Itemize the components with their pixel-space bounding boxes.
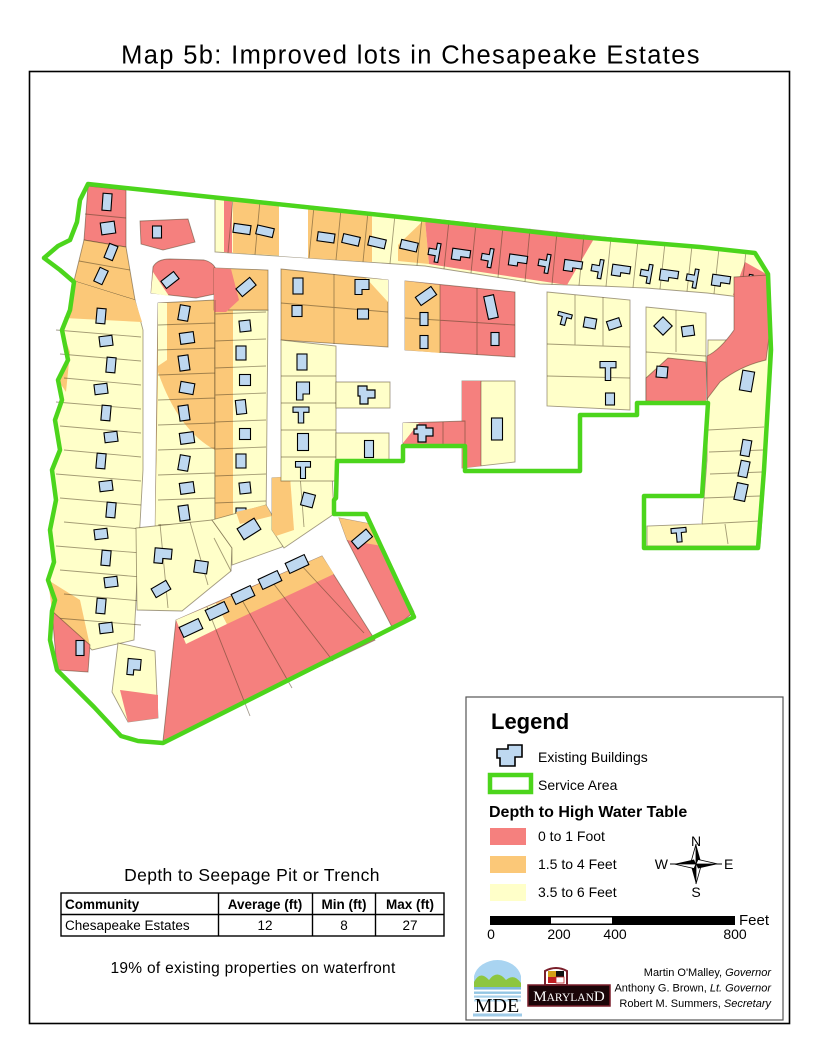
svg-text:Depth to Seepage Pit or Trench: Depth to Seepage Pit or Trench [124,865,380,885]
svg-text:Average (ft): Average (ft) [228,897,303,912]
svg-text:0: 0 [487,926,495,942]
svg-text:19% of existing properties on: 19% of existing properties on waterfront [110,960,396,977]
svg-text:Legend: Legend [491,709,569,734]
svg-text:E: E [724,856,733,872]
svg-text:MARYLAND: MARYLAND [533,989,605,1005]
svg-text:12: 12 [257,918,272,933]
svg-text:W: W [655,856,669,872]
svg-text:1.5 to 4 Feet: 1.5 to 4 Feet [538,856,617,872]
svg-text:0 to 1 Foot: 0 to 1 Foot [538,828,605,844]
svg-text:Chesapeake Estates: Chesapeake Estates [65,918,190,933]
svg-text:800: 800 [723,926,747,942]
svg-text:400: 400 [603,926,627,942]
svg-text:Robert M. Summers, Secretary: Robert M. Summers, Secretary [619,998,772,1010]
svg-text:Existing Buildings: Existing Buildings [538,749,648,765]
svg-text:200: 200 [547,926,571,942]
svg-text:Map 5b: Improved lots in Chesa: Map 5b: Improved lots in Chesapeake Esta… [121,42,701,70]
svg-text:Anthony G. Brown, Lt. Governor: Anthony G. Brown, Lt. Governor [614,983,772,995]
svg-text:27: 27 [402,918,417,933]
svg-text:8: 8 [340,918,348,933]
svg-text:Community: Community [65,897,140,912]
svg-text:Martin O'Malley, Governor: Martin O'Malley, Governor [644,967,773,979]
svg-text:Max (ft): Max (ft) [386,897,434,912]
svg-text:Min (ft): Min (ft) [322,897,367,912]
svg-text:S: S [691,884,700,900]
svg-text:Service Area: Service Area [538,777,618,793]
svg-text:3.5 to 6 Feet: 3.5 to 6 Feet [538,884,617,900]
svg-text:Depth to High Water Table: Depth to High Water Table [489,804,687,821]
